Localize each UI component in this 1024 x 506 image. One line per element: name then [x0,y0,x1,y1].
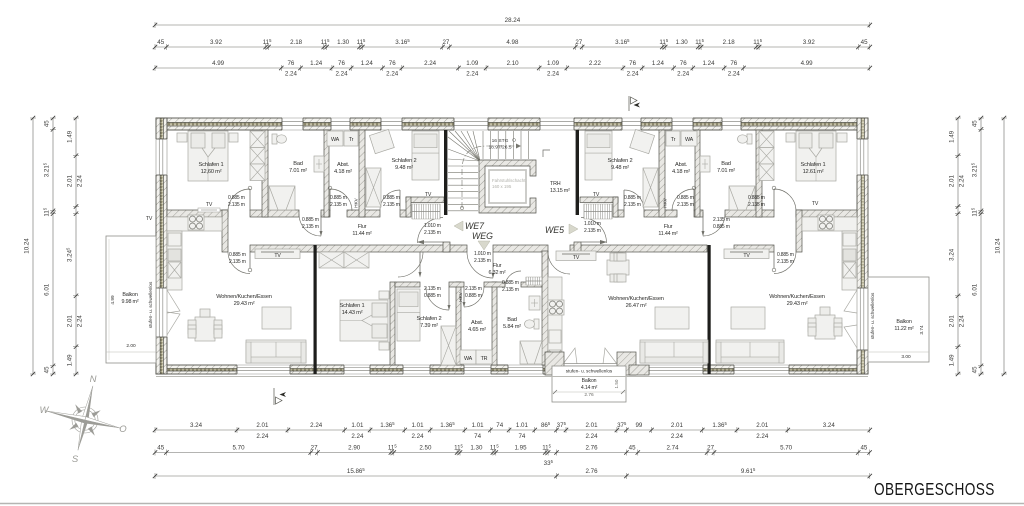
svg-text:29.43 m²: 29.43 m² [787,301,808,307]
svg-text:2.24: 2.24 [627,71,640,78]
svg-text:Balkon: Balkon [122,292,137,298]
svg-text:16 STG: 16 STG [492,138,509,144]
svg-text:74: 74 [474,433,481,440]
svg-text:2.01: 2.01 [67,175,74,188]
svg-text:Abst.: Abst. [337,162,350,168]
svg-text:0.885 m: 0.885 m [228,195,245,201]
svg-text:10.24: 10.24 [995,238,1002,254]
svg-text:45: 45 [157,39,164,46]
svg-text:TRH: TRH [550,181,561,187]
svg-text:1.24: 1.24 [310,60,323,67]
svg-text:2.01: 2.01 [256,422,269,429]
svg-text:2.24: 2.24 [310,422,323,429]
svg-text:stufen- u. schwellenlos: stufen- u. schwellenlos [566,369,613,374]
svg-text:14.43 m²: 14.43 m² [342,310,363,316]
svg-text:18.97/26.5: 18.97/26.5 [488,145,511,151]
svg-text:29.43 m²: 29.43 m² [234,301,255,307]
svg-text:2.135 m: 2.135 m [677,202,694,208]
svg-text:2.24: 2.24 [466,71,479,78]
svg-text:160 x 195: 160 x 195 [492,184,512,189]
svg-text:76: 76 [629,60,636,67]
svg-text:2.24: 2.24 [547,71,560,78]
svg-text:4.18 m²: 4.18 m² [672,169,690,175]
svg-text:WA: WA [685,137,694,143]
svg-text:1.50: 1.50 [614,379,619,388]
svg-text:TV: TV [573,255,580,261]
svg-text:3.92: 3.92 [210,39,223,46]
svg-text:WE7: WE7 [465,221,485,231]
svg-text:TV: TV [743,253,750,259]
svg-text:S: S [72,454,79,465]
svg-text:Wohnen/Kuchen/Essen: Wohnen/Kuchen/Essen [216,294,272,300]
svg-text:1.24: 1.24 [361,60,374,67]
svg-text:2.135 m: 2.135 m [474,258,491,264]
svg-text:2.01: 2.01 [671,422,684,429]
svg-text:2.24: 2.24 [424,60,437,67]
svg-text:13.15 m²: 13.15 m² [550,188,570,194]
svg-text:2.24: 2.24 [386,71,399,78]
svg-text:45: 45 [629,445,636,452]
svg-text:3.92: 3.92 [803,39,816,46]
svg-text:Schlafen 1: Schlafen 1 [340,303,365,309]
svg-text:27: 27 [311,445,318,452]
svg-text:2.135 m: 2.135 m [228,202,245,208]
svg-text:Bad: Bad [507,317,517,323]
svg-text:0.885 m: 0.885 m [302,217,319,223]
svg-text:3.24: 3.24 [949,248,956,261]
svg-text:2.135 m: 2.135 m [502,287,519,293]
svg-text:Flur: Flur [358,224,367,230]
svg-text:1.24: 1.24 [652,60,665,67]
svg-text:2.24: 2.24 [411,433,424,440]
svg-text:27: 27 [442,39,449,46]
svg-text:76: 76 [389,60,396,67]
svg-text:3.00: 3.00 [901,354,911,360]
svg-text:TV: TV [146,216,153,222]
svg-text:TR: TR [481,356,488,362]
svg-text:2.10: 2.10 [507,60,520,67]
svg-text:5.84 m²: 5.84 m² [503,324,521,330]
svg-text:2.01: 2.01 [585,422,598,429]
svg-text:WE5: WE5 [545,225,564,235]
svg-text:4.65 m²: 4.65 m² [468,327,486,333]
svg-text:WEG: WEG [472,231,493,241]
svg-text:4.18 m²: 4.18 m² [334,169,352,175]
svg-text:Wohnen/Kuchen/Essen: Wohnen/Kuchen/Essen [769,294,825,300]
svg-text:Fahrstuhlschacht: Fahrstuhlschacht [492,178,526,183]
svg-text:0.885 m: 0.885 m [624,195,641,201]
svg-text:Schlafen 2: Schlafen 2 [608,158,633,164]
svg-text:1.30: 1.30 [676,39,689,46]
svg-text:OBERGESCHOSS: OBERGESCHOSS [874,481,995,500]
svg-text:HKV: HKV [458,291,463,301]
svg-text:45: 45 [972,120,979,127]
svg-text:TV: TV [812,201,819,207]
svg-text:W: W [40,405,50,416]
svg-text:2.18: 2.18 [290,39,303,46]
svg-text:1.95: 1.95 [514,445,527,452]
svg-text:2.24: 2.24 [77,315,84,328]
svg-text:0.885 m: 0.885 m [229,252,246,258]
svg-text:2.24: 2.24 [756,433,769,440]
svg-text:2.135 m: 2.135 m [424,286,441,292]
svg-text:74: 74 [518,433,525,440]
svg-text:2.135 m: 2.135 m [302,224,319,230]
svg-text:1.09: 1.09 [466,60,479,67]
svg-text:N: N [90,374,97,385]
svg-text:2.135 m: 2.135 m [465,286,482,292]
svg-text:1.24: 1.24 [702,60,715,67]
svg-text:1.01: 1.01 [472,422,485,429]
svg-text:Flur: Flur [664,224,673,230]
svg-text:Schlafen 1: Schlafen 1 [199,162,224,168]
svg-text:2.74: 2.74 [666,445,679,452]
svg-text:Abst.: Abst. [471,320,484,326]
svg-text:TV: TV [274,253,281,259]
svg-text:45: 45 [861,39,868,46]
svg-text:1.30: 1.30 [470,445,483,452]
svg-text:2.135 m: 2.135 m [777,259,794,265]
svg-text:0.885 m: 0.885 m [748,195,765,201]
svg-text:2.50: 2.50 [419,445,432,452]
svg-text:45: 45 [44,120,51,127]
svg-text:O: O [119,424,127,435]
svg-text:Bad: Bad [721,161,731,167]
svg-text:TV: TV [425,192,432,198]
svg-text:1.010 m: 1.010 m [424,223,441,229]
svg-text:TV: TV [593,192,600,198]
svg-text:Schlafen 1: Schlafen 1 [801,162,826,168]
svg-text:6.01: 6.01 [972,283,979,296]
svg-text:7.39 m²: 7.39 m² [420,323,438,329]
svg-text:74: 74 [496,422,503,429]
svg-text:3.24: 3.24 [823,422,836,429]
svg-text:1.49: 1.49 [949,130,956,143]
svg-text:2.135 m: 2.135 m [584,228,601,234]
svg-text:Balkon: Balkon [582,378,597,384]
svg-text:3.74: 3.74 [919,325,925,335]
svg-text:0.885 m: 0.885 m [465,293,482,299]
svg-text:2.24: 2.24 [585,433,598,440]
svg-text:2.24: 2.24 [285,71,298,78]
svg-text:0.885 m: 0.885 m [713,224,730,230]
svg-text:2.135 m: 2.135 m [748,202,765,208]
svg-text:HKV: HKV [354,197,359,207]
svg-text:45: 45 [157,445,164,452]
svg-text:2.01: 2.01 [756,422,769,429]
svg-text:2.76: 2.76 [584,392,594,398]
svg-text:5.70: 5.70 [232,445,245,452]
svg-text:Wohnen/Kuchen/Essen: Wohnen/Kuchen/Essen [608,296,664,302]
svg-text:2.90: 2.90 [348,445,361,452]
svg-text:Tr: Tr [671,137,676,143]
svg-text:2.24: 2.24 [256,433,269,440]
svg-text:2.01: 2.01 [67,315,74,328]
svg-text:4.99: 4.99 [110,295,116,305]
svg-text:Schlafen 2: Schlafen 2 [417,316,442,322]
svg-text:45: 45 [44,366,51,373]
svg-text:11.44 m²: 11.44 m² [658,231,678,237]
svg-text:1.01: 1.01 [411,422,424,429]
svg-text:1.01: 1.01 [516,422,529,429]
svg-text:2.135 m: 2.135 m [330,202,347,208]
svg-text:1.49: 1.49 [67,354,74,367]
svg-text:stufen- u. schwellenlos: stufen- u. schwellenlos [870,292,875,339]
svg-text:11.22 m²: 11.22 m² [894,326,914,332]
svg-text:76: 76 [680,60,687,67]
svg-text:4.99: 4.99 [212,60,225,67]
svg-text:0.885 m: 0.885 m [383,195,400,201]
svg-text:27: 27 [707,445,714,452]
svg-text:1.49: 1.49 [949,354,956,367]
svg-text:TV: TV [206,202,213,208]
svg-text:Abst.: Abst. [675,162,688,168]
svg-text:0.885 m: 0.885 m [330,195,347,201]
svg-text:7.01 m²: 7.01 m² [289,168,307,174]
svg-text:Balkon: Balkon [896,319,911,325]
svg-text:4.14 m²: 4.14 m² [581,385,598,391]
svg-text:Flur: Flur [493,263,502,269]
svg-text:0.885 m: 0.885 m [677,195,694,201]
svg-text:6.32 m²: 6.32 m² [489,270,506,276]
svg-text:1.30: 1.30 [337,39,350,46]
svg-text:99: 99 [635,422,642,429]
svg-text:76: 76 [338,60,345,67]
svg-text:1.01: 1.01 [351,422,364,429]
svg-text:2.22: 2.22 [589,60,602,67]
svg-text:7.01 m²: 7.01 m² [717,168,735,174]
svg-text:12.61 m²: 12.61 m² [803,169,824,175]
svg-text:2.135 m: 2.135 m [383,202,400,208]
svg-text:stufen- u. schwellenlos: stufen- u. schwellenlos [148,281,153,328]
svg-text:2.24: 2.24 [677,71,690,78]
svg-text:12,60 m²: 12,60 m² [201,169,222,175]
svg-text:2.135 m: 2.135 m [229,259,246,265]
svg-text:WA: WA [331,137,340,143]
svg-text:Tr: Tr [349,137,354,143]
svg-text:2.135 m: 2.135 m [624,202,641,208]
svg-text:6.01: 6.01 [44,283,51,296]
svg-text:HKV: HKV [663,197,668,207]
svg-text:2.24: 2.24 [335,71,348,78]
svg-text:2.135 m: 2.135 m [424,230,441,236]
svg-text:2.76: 2.76 [585,468,598,475]
svg-text:1.010 m: 1.010 m [584,221,601,227]
svg-text:9.48 m²: 9.48 m² [611,165,629,171]
svg-text:2.01: 2.01 [949,315,956,328]
svg-text:2.24: 2.24 [671,433,684,440]
svg-text:4.98: 4.98 [506,39,519,46]
svg-text:2.24: 2.24 [959,175,966,188]
svg-text:5.70: 5.70 [780,445,793,452]
svg-text:76: 76 [730,60,737,67]
svg-text:2.24: 2.24 [351,433,364,440]
svg-text:45: 45 [860,445,867,452]
svg-text:2.24: 2.24 [959,315,966,328]
svg-text:2.24: 2.24 [728,71,741,78]
svg-text:2.24: 2.24 [77,175,84,188]
svg-text:27: 27 [575,39,582,46]
svg-text:76: 76 [287,60,294,67]
svg-text:11.44 m²: 11.44 m² [352,231,372,237]
svg-text:1.010 m: 1.010 m [474,251,491,257]
svg-text:0.885 m: 0.885 m [777,252,794,258]
svg-text:3.24: 3.24 [190,422,203,429]
svg-text:4.99: 4.99 [801,60,814,67]
svg-text:0.885 m: 0.885 m [502,280,519,286]
svg-text:2.76: 2.76 [585,445,598,452]
svg-text:9.48 m²: 9.48 m² [395,165,413,171]
svg-text:2.01: 2.01 [949,175,956,188]
svg-text:0.885 m: 0.885 m [424,293,441,299]
svg-text:1.09: 1.09 [547,60,560,67]
svg-text:WA: WA [464,356,473,362]
svg-text:45: 45 [972,366,979,373]
svg-text:9.98 m²: 9.98 m² [122,299,139,305]
svg-text:1.49: 1.49 [67,130,74,143]
svg-text:26.47 m²: 26.47 m² [626,303,647,309]
svg-text:10.24: 10.24 [24,238,31,254]
svg-text:2.18: 2.18 [723,39,736,46]
svg-text:2.00: 2.00 [126,343,136,349]
svg-text:Schlafen 2: Schlafen 2 [392,158,417,164]
svg-text:Bad: Bad [293,161,303,167]
svg-text:2.135 m: 2.135 m [713,217,730,223]
svg-text:28.24: 28.24 [505,17,521,24]
